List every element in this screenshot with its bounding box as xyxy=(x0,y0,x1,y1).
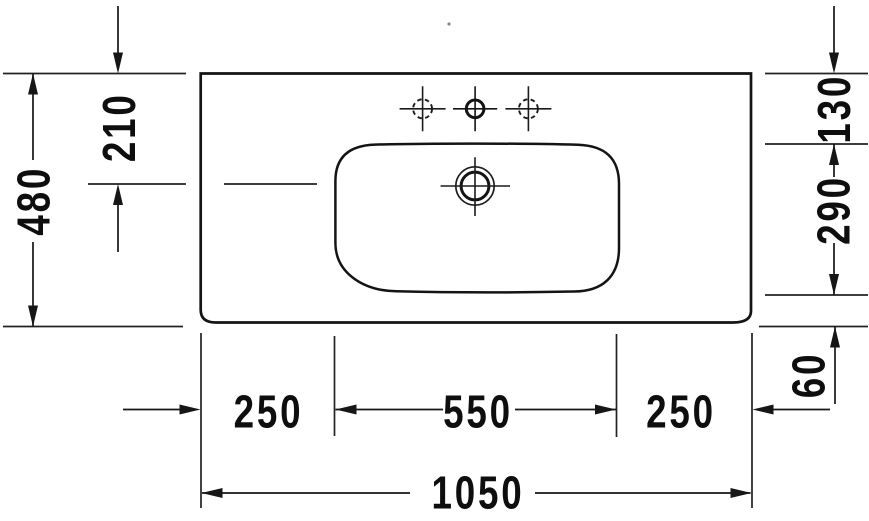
svg-text:210: 210 xyxy=(93,92,145,162)
svg-text:550: 550 xyxy=(443,386,513,438)
svg-text:250: 250 xyxy=(646,386,716,438)
svg-text:480: 480 xyxy=(8,166,60,236)
svg-text:1050: 1050 xyxy=(431,466,524,518)
svg-text:60: 60 xyxy=(783,352,835,399)
svg-text:290: 290 xyxy=(808,175,860,245)
svg-text:250: 250 xyxy=(234,386,304,438)
svg-text:130: 130 xyxy=(808,74,860,144)
